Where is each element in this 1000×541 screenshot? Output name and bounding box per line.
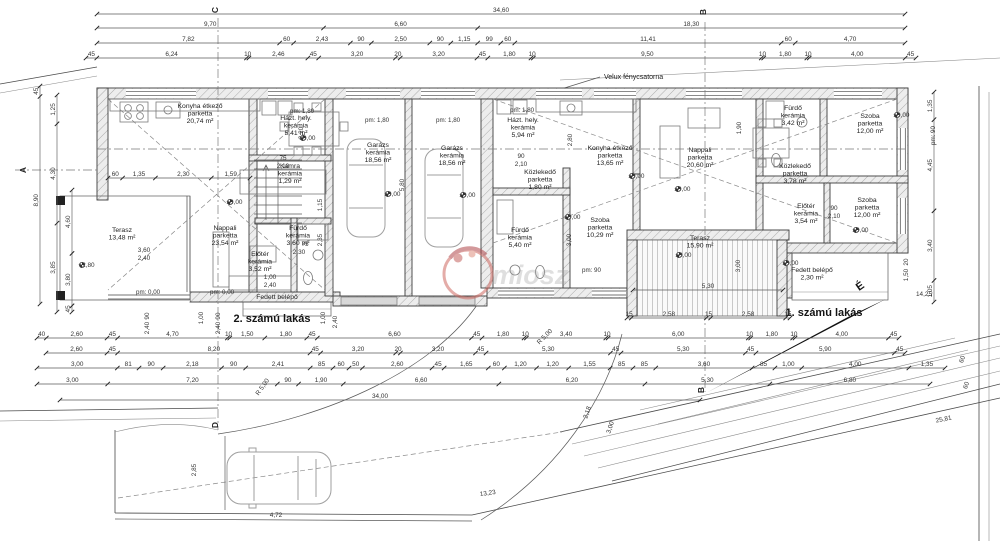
dim-chain-14: 4,603,8045 bbox=[65, 188, 74, 314]
svg-text:Nappali: Nappali bbox=[688, 147, 712, 154]
svg-text:45: 45 bbox=[612, 346, 620, 353]
free-dim-12: 2,40 bbox=[138, 255, 151, 262]
svg-text:15: 15 bbox=[784, 311, 792, 318]
room-label-nappali-l: Nappaliparketta23,54 m² bbox=[212, 225, 240, 247]
room-label-kozlekedo-r2: Közlekedőparketta3,78 m² bbox=[779, 163, 811, 185]
svg-text:34,00: 34,00 bbox=[372, 393, 388, 400]
level-mark-5: ±0,00 bbox=[675, 186, 691, 193]
parked-car bbox=[227, 448, 331, 508]
svg-text:18,30: 18,30 bbox=[683, 21, 699, 28]
svg-text:10: 10 bbox=[603, 331, 611, 338]
svg-text:3,00: 3,00 bbox=[66, 377, 79, 384]
svg-text:±0,00: ±0,00 bbox=[629, 173, 645, 180]
svg-text:10: 10 bbox=[746, 331, 754, 338]
svg-text:4,00: 4,00 bbox=[851, 51, 864, 58]
room-label-hazt-hely-l: Házt. hely.kerámia5,41 m² bbox=[280, 115, 312, 137]
svg-text:40: 40 bbox=[38, 331, 46, 338]
room-label-szoba-r3: Szobaparketta12,00 m² bbox=[854, 197, 882, 219]
apartment-right-title: 1. számú lakás bbox=[785, 307, 862, 319]
svg-text:parketta: parketta bbox=[528, 176, 553, 183]
svg-text:15: 15 bbox=[705, 311, 713, 318]
north-letter: É bbox=[853, 279, 866, 294]
svg-text:90: 90 bbox=[284, 377, 292, 384]
svg-text:3,85: 3,85 bbox=[50, 261, 57, 274]
svg-text:Közlekedő: Közlekedő bbox=[779, 163, 811, 170]
parking-area bbox=[115, 398, 1000, 521]
utility-left bbox=[262, 101, 292, 115]
svg-text:1,55: 1,55 bbox=[583, 361, 596, 368]
svg-text:2,18: 2,18 bbox=[186, 361, 199, 368]
dim-chain-5: 2,60458,20453,20203,20455,30455,30455,90… bbox=[44, 346, 907, 355]
svg-text:8,20: 8,20 bbox=[208, 346, 221, 353]
room-label-hazt-hely-r: Házt. hely.kerámia5,94 m² bbox=[507, 117, 539, 139]
free-dim-34: 90 bbox=[215, 312, 222, 320]
svg-text:10: 10 bbox=[804, 51, 812, 58]
dim-chain-8: 34,00 bbox=[58, 393, 702, 402]
svg-text:85: 85 bbox=[318, 361, 326, 368]
svg-text:6,80: 6,80 bbox=[844, 377, 857, 384]
svg-text:5,30: 5,30 bbox=[702, 283, 715, 290]
free-dim-18: 2,10 bbox=[828, 213, 841, 220]
svg-text:Szoba: Szoba bbox=[860, 113, 879, 120]
svg-text:3,80: 3,80 bbox=[65, 273, 72, 286]
svg-text:45: 45 bbox=[109, 331, 117, 338]
svg-text:60: 60 bbox=[337, 361, 345, 368]
room-label-fedett-belepo-r: Fedett belépő2,30 m² bbox=[791, 267, 833, 281]
svg-text:90: 90 bbox=[437, 36, 445, 43]
level-mark-8: ±0,00 bbox=[565, 214, 581, 221]
svg-text:1,65: 1,65 bbox=[460, 361, 473, 368]
room-label-fedett-belepo-l: Fedett belépő bbox=[256, 294, 298, 301]
svg-text:45: 45 bbox=[312, 346, 320, 353]
free-dim-13: 1,00 bbox=[264, 274, 277, 281]
svg-text:90: 90 bbox=[230, 361, 238, 368]
svg-text:50: 50 bbox=[352, 361, 360, 368]
svg-text:Szoba: Szoba bbox=[857, 197, 876, 204]
svg-text:1,80: 1,80 bbox=[765, 331, 778, 338]
room-label-garazs-1: Garázskerámia18,56 m² bbox=[365, 142, 393, 164]
svg-text:parketta: parketta bbox=[855, 204, 880, 211]
svg-text:5,30: 5,30 bbox=[677, 346, 690, 353]
level-mark-11: +2,80 bbox=[78, 262, 95, 269]
svg-text:1,20: 1,20 bbox=[514, 361, 527, 368]
svg-text:5,30: 5,30 bbox=[701, 377, 714, 384]
svg-text:3,20: 3,20 bbox=[351, 51, 364, 58]
svg-text:45: 45 bbox=[896, 346, 904, 353]
free-dim-25: 1,90 bbox=[736, 121, 743, 134]
svg-text:4,00: 4,00 bbox=[849, 361, 862, 368]
svg-text:60: 60 bbox=[283, 36, 291, 43]
svg-text:1,35: 1,35 bbox=[927, 99, 934, 112]
svg-text:±0,00: ±0,00 bbox=[853, 227, 869, 234]
dim-chain-1: 9,706,6018,30 bbox=[95, 21, 907, 30]
svg-text:9,50: 9,50 bbox=[641, 51, 654, 58]
free-dim-7: 2,18 bbox=[582, 405, 593, 419]
pm-label-1: pm: 1,80 bbox=[365, 117, 390, 124]
svg-text:1,50: 1,50 bbox=[241, 331, 254, 338]
pm-label-5: pm: 0,00 bbox=[210, 289, 235, 296]
svg-text:2,43: 2,43 bbox=[316, 36, 329, 43]
svg-text:23,54 m²: 23,54 m² bbox=[212, 240, 240, 247]
svg-text:2,46: 2,46 bbox=[272, 51, 285, 58]
dim-chain-6: 3,0081902,18902,418560502,60451,65601,20… bbox=[35, 361, 947, 370]
svg-text:Terasz: Terasz bbox=[690, 235, 711, 242]
floor-plan-page: Velux fénycsatorna bbox=[0, 0, 1000, 541]
terrace-left bbox=[56, 196, 190, 300]
room-label-terasz-r: Terasz15,90 m² bbox=[687, 235, 715, 249]
room-label-eloter-l: Előtérkerámia3,52 m² bbox=[248, 251, 272, 273]
apartment-left-title: 2. számú lakás bbox=[233, 313, 310, 325]
svg-text:2,58: 2,58 bbox=[663, 311, 676, 318]
svg-text:1,90: 1,90 bbox=[315, 377, 328, 384]
svg-text:12,00 m²: 12,00 m² bbox=[854, 212, 882, 219]
svg-text:Konyha étkező: Konyha étkező bbox=[588, 145, 633, 152]
svg-text:Garázs: Garázs bbox=[441, 145, 464, 152]
svg-text:3,40: 3,40 bbox=[927, 239, 934, 252]
free-dim-1: R 5,00 bbox=[536, 327, 555, 346]
svg-text:8,90: 8,90 bbox=[33, 194, 40, 207]
svg-text:4,30: 4,30 bbox=[50, 167, 57, 180]
free-dim-29: 1,15 bbox=[317, 198, 324, 211]
svg-text:34,60: 34,60 bbox=[493, 7, 509, 14]
svg-text:5,94 m²: 5,94 m² bbox=[511, 132, 535, 139]
svg-text:kerámia: kerámia bbox=[248, 258, 272, 265]
section-marker-a-2: A bbox=[18, 167, 28, 173]
free-dim-23: 2,20 bbox=[298, 126, 305, 139]
svg-text:45: 45 bbox=[65, 305, 72, 313]
svg-text:±0,00: ±0,00 bbox=[565, 214, 581, 221]
svg-text:3,20: 3,20 bbox=[432, 346, 445, 353]
room-label-kozlekedo-r1: Közlekedőparketta1,80 m² bbox=[524, 169, 556, 191]
svg-text:parketta: parketta bbox=[858, 120, 883, 127]
svg-text:kerámia: kerámia bbox=[366, 149, 390, 156]
svg-text:3,00: 3,00 bbox=[71, 361, 84, 368]
free-dim-2: 13,23 bbox=[479, 489, 496, 498]
svg-text:kerámia: kerámia bbox=[286, 232, 310, 239]
svg-text:Fürdő: Fürdő bbox=[784, 105, 802, 112]
free-dim-36: 1,00 bbox=[320, 311, 327, 324]
svg-text:2,58: 2,58 bbox=[742, 311, 755, 318]
svg-text:+2,80: +2,80 bbox=[78, 262, 95, 269]
free-dim-8: 3,00 bbox=[605, 420, 616, 434]
svg-text:3,40: 3,40 bbox=[560, 331, 573, 338]
svg-text:99: 99 bbox=[486, 36, 494, 43]
svg-text:45: 45 bbox=[907, 51, 915, 58]
svg-text:2,30: 2,30 bbox=[177, 171, 190, 178]
svg-text:1,29 m²: 1,29 m² bbox=[278, 178, 302, 185]
room-label-garazs-2: Garázskerámia18,56 m² bbox=[439, 145, 467, 167]
svg-text:1,25: 1,25 bbox=[50, 103, 57, 116]
svg-text:Előtér: Előtér bbox=[251, 251, 269, 258]
svg-text:±0,00: ±0,00 bbox=[675, 186, 691, 193]
free-dim-6: 14,25 bbox=[916, 291, 932, 298]
svg-text:6,60: 6,60 bbox=[388, 331, 401, 338]
free-dim-33: 1,00 bbox=[198, 311, 205, 324]
level-mark-3: ±0,00 bbox=[460, 192, 476, 199]
svg-text:Fedett belépő: Fedett belépő bbox=[256, 294, 298, 301]
svg-text:3,78 m²: 3,78 m² bbox=[783, 178, 807, 185]
svg-text:kerámia: kerámia bbox=[781, 112, 805, 119]
svg-text:6,20: 6,20 bbox=[566, 377, 579, 384]
svg-text:Terasz: Terasz bbox=[112, 227, 133, 234]
free-dim-9: 60 bbox=[958, 355, 967, 364]
dim-chain-15: 1,354,453,401,05 bbox=[927, 90, 936, 304]
svg-text:6,60: 6,60 bbox=[394, 21, 407, 28]
svg-text:10: 10 bbox=[759, 51, 767, 58]
svg-text:60: 60 bbox=[504, 36, 512, 43]
svg-text:60: 60 bbox=[493, 361, 501, 368]
svg-text:5,90: 5,90 bbox=[819, 346, 832, 353]
room-label-konyha-etkezo-l: Konyha étkezőparketta20,74 m² bbox=[178, 103, 223, 125]
svg-text:45: 45 bbox=[310, 51, 318, 58]
level-mark-0: ±0,00 bbox=[227, 199, 243, 206]
svg-text:2,50: 2,50 bbox=[394, 36, 407, 43]
pm-label-3: pm: 1,80 bbox=[510, 107, 535, 114]
free-dim-15: 90 bbox=[517, 153, 525, 160]
svg-text:kerámia: kerámia bbox=[794, 210, 818, 217]
svg-text:1,80: 1,80 bbox=[497, 331, 510, 338]
svg-text:1,15: 1,15 bbox=[458, 36, 471, 43]
svg-text:3,54 m²: 3,54 m² bbox=[794, 218, 818, 225]
svg-text:85: 85 bbox=[760, 361, 768, 368]
svg-text:Szoba: Szoba bbox=[590, 217, 609, 224]
svg-text:45: 45 bbox=[473, 331, 481, 338]
room-label-szoba-r1: Szobaparketta10,29 m² bbox=[587, 217, 615, 239]
free-dim-4: 2,85 bbox=[191, 463, 198, 476]
svg-text:20: 20 bbox=[394, 346, 402, 353]
svg-text:7,82: 7,82 bbox=[182, 36, 195, 43]
svg-text:3,20: 3,20 bbox=[352, 346, 365, 353]
svg-text:kerámia: kerámia bbox=[278, 170, 302, 177]
svg-text:4,70: 4,70 bbox=[844, 36, 857, 43]
svg-text:1,20: 1,20 bbox=[546, 361, 559, 368]
dim-chain-12: 458,90 bbox=[33, 84, 42, 306]
svg-text:Házt. hely.: Házt. hely. bbox=[507, 117, 539, 124]
svg-text:±0,00: ±0,00 bbox=[227, 199, 243, 206]
section-marker-c-0: C bbox=[210, 7, 220, 13]
pm-label-2: pm: 1,80 bbox=[436, 117, 461, 124]
room-label-furdo-r1: Fürdőkerámia5,40 m² bbox=[508, 227, 532, 249]
svg-text:20,74 m²: 20,74 m² bbox=[187, 118, 215, 125]
free-dim-22: 2,10 bbox=[277, 163, 290, 170]
svg-text:1,80: 1,80 bbox=[280, 331, 293, 338]
free-dim-19: 75 bbox=[301, 241, 309, 248]
velux-note-label: Velux fénycsatorna bbox=[604, 74, 663, 81]
svg-text:45: 45 bbox=[747, 346, 755, 353]
watermark-text: miosz bbox=[492, 260, 569, 290]
free-dim-10: 60 bbox=[962, 381, 971, 390]
svg-text:18,56 m²: 18,56 m² bbox=[439, 160, 467, 167]
dim-chain-2: 7,82602,43902,50901,15996011,41604,70 bbox=[95, 36, 907, 45]
room-label-nappali-r: Nappaliparketta20,60 m² bbox=[687, 147, 715, 169]
free-dim-17: 90 bbox=[830, 205, 838, 212]
svg-text:18,56 m²: 18,56 m² bbox=[365, 157, 393, 164]
svg-text:10: 10 bbox=[244, 51, 252, 58]
svg-text:45: 45 bbox=[109, 346, 117, 353]
room-label-szoba-r2: Szobaparketta12,00 m² bbox=[857, 113, 885, 135]
svg-text:45: 45 bbox=[309, 331, 317, 338]
svg-text:3,20: 3,20 bbox=[432, 51, 445, 58]
svg-text:2,30 m²: 2,30 m² bbox=[800, 274, 824, 281]
svg-text:parketta: parketta bbox=[598, 152, 623, 159]
svg-text:90: 90 bbox=[148, 361, 156, 368]
svg-text:45: 45 bbox=[477, 346, 485, 353]
svg-text:±0,00: ±0,00 bbox=[783, 260, 799, 267]
free-dim-3: 4,72 bbox=[270, 512, 283, 519]
section-marker-d-3: D bbox=[210, 422, 220, 428]
svg-text:1,59: 1,59 bbox=[224, 171, 237, 178]
level-mark-7: ±0,00 bbox=[853, 227, 869, 234]
svg-text:Konyha étkező: Konyha étkező bbox=[178, 103, 223, 110]
free-dim-31: 90 bbox=[144, 312, 151, 320]
free-dim-39: 1,50 bbox=[903, 268, 910, 281]
svg-text:1,80 m²: 1,80 m² bbox=[528, 184, 552, 191]
svg-text:6,60: 6,60 bbox=[415, 377, 428, 384]
svg-text:20: 20 bbox=[394, 51, 402, 58]
svg-text:Előtér: Előtér bbox=[797, 203, 815, 210]
svg-text:5,30: 5,30 bbox=[542, 346, 555, 353]
svg-text:Garázs: Garázs bbox=[367, 142, 390, 149]
svg-text:45: 45 bbox=[33, 87, 40, 95]
dim-chain-9: 601,352,301,59 bbox=[106, 171, 252, 180]
svg-text:4,70: 4,70 bbox=[166, 331, 179, 338]
svg-text:1,80: 1,80 bbox=[503, 51, 516, 58]
svg-text:Házt. hely.: Házt. hely. bbox=[280, 115, 312, 122]
free-dim-5: 25,81 bbox=[935, 414, 953, 424]
svg-text:4,00: 4,00 bbox=[836, 331, 849, 338]
svg-text:4,60: 4,60 bbox=[65, 215, 72, 228]
free-dim-21: 75 bbox=[279, 155, 287, 162]
pm-label-6: pm: 90 bbox=[582, 267, 601, 274]
dim-chain-4: 402,60454,70101,501,80456,60451,80103,40… bbox=[35, 331, 901, 340]
svg-text:±0,00: ±0,00 bbox=[676, 252, 692, 259]
svg-text:1,80: 1,80 bbox=[779, 51, 792, 58]
svg-text:85: 85 bbox=[641, 361, 649, 368]
free-dim-35: 2,40 bbox=[215, 321, 222, 334]
free-dim-30: 2,35 bbox=[317, 233, 324, 246]
section-marker-b-1: B bbox=[698, 9, 708, 15]
svg-text:6,24: 6,24 bbox=[165, 51, 178, 58]
section-marker-b-4: B bbox=[696, 387, 706, 393]
svg-text:kerámia: kerámia bbox=[511, 124, 535, 131]
free-dim-16: 2,10 bbox=[515, 161, 528, 168]
free-dim-26: 5,80 bbox=[399, 178, 406, 191]
room-label-terasz-l: Terasz13,48 m² bbox=[109, 227, 137, 241]
svg-text:1,35: 1,35 bbox=[921, 361, 934, 368]
dim-chain-7: 3,007,20901,906,606,205,306,80 bbox=[35, 377, 932, 386]
svg-text:parketta: parketta bbox=[213, 232, 238, 239]
svg-text:3,42 m²: 3,42 m² bbox=[781, 120, 805, 127]
svg-text:60: 60 bbox=[112, 171, 120, 178]
svg-text:Nappali: Nappali bbox=[213, 225, 237, 232]
svg-text:Fedett belépő: Fedett belépő bbox=[791, 267, 833, 274]
svg-text:1,35: 1,35 bbox=[133, 171, 146, 178]
free-dim-38: 20 bbox=[903, 258, 910, 266]
free-dim-37: 2,40 bbox=[332, 315, 339, 328]
svg-text:Fürdő: Fürdő bbox=[289, 225, 307, 232]
level-mark-9: ±0,00 bbox=[676, 252, 692, 259]
svg-text:±0,00: ±0,00 bbox=[894, 112, 910, 119]
svg-text:90: 90 bbox=[357, 36, 365, 43]
svg-text:parketta: parketta bbox=[688, 154, 713, 161]
svg-text:2,60: 2,60 bbox=[70, 346, 83, 353]
dim-chain-3: 456,24102,46453,20203,20451,80109,50101,… bbox=[84, 51, 918, 60]
svg-text:45: 45 bbox=[88, 51, 96, 58]
svg-text:10: 10 bbox=[225, 331, 233, 338]
svg-text:parketta: parketta bbox=[783, 170, 808, 177]
svg-text:2,60: 2,60 bbox=[391, 361, 404, 368]
svg-text:10: 10 bbox=[522, 331, 530, 338]
svg-text:85: 85 bbox=[618, 361, 626, 368]
svg-text:45: 45 bbox=[890, 331, 898, 338]
level-mark-6: ±0,00 bbox=[894, 112, 910, 119]
svg-text:parketta: parketta bbox=[588, 224, 613, 231]
free-dim-14: 2,40 bbox=[264, 282, 277, 289]
svg-text:6,00: 6,00 bbox=[672, 331, 685, 338]
free-dim-0: R 5,00 bbox=[255, 377, 272, 397]
svg-text:20,60 m²: 20,60 m² bbox=[687, 162, 715, 169]
svg-text:±0,00: ±0,00 bbox=[460, 192, 476, 199]
svg-text:2,60: 2,60 bbox=[70, 331, 83, 338]
svg-text:15,90 m²: 15,90 m² bbox=[687, 242, 715, 249]
pm-label-4: pm: 0,00 bbox=[136, 289, 161, 296]
svg-text:kerámia: kerámia bbox=[508, 234, 532, 241]
svg-text:3,60: 3,60 bbox=[698, 361, 711, 368]
svg-text:2,41: 2,41 bbox=[272, 361, 285, 368]
terrace-glass-wall bbox=[187, 196, 190, 292]
svg-text:parketta: parketta bbox=[188, 110, 213, 117]
svg-text:7,20: 7,20 bbox=[186, 377, 199, 384]
svg-text:4,45: 4,45 bbox=[927, 159, 934, 172]
svg-text:9,70: 9,70 bbox=[204, 21, 217, 28]
free-dim-32: 2,40 bbox=[144, 321, 151, 334]
terrace-right-deck bbox=[627, 240, 787, 316]
room-label-konyha-etkezo-r: Konyha étkezőparketta13,65 m² bbox=[588, 145, 633, 167]
svg-text:13,65 m²: 13,65 m² bbox=[597, 160, 625, 167]
svg-text:Fürdő: Fürdő bbox=[511, 227, 529, 234]
svg-text:45: 45 bbox=[479, 51, 487, 58]
room-label-furdo-r2: Fürdőkerámia3,42 m² bbox=[781, 105, 805, 127]
svg-text:60: 60 bbox=[785, 36, 793, 43]
svg-text:45: 45 bbox=[435, 361, 443, 368]
svg-text:5,40 m²: 5,40 m² bbox=[508, 242, 532, 249]
svg-text:Közlekedő: Közlekedő bbox=[524, 169, 556, 176]
svg-text:15: 15 bbox=[626, 311, 634, 318]
svg-text:10: 10 bbox=[529, 51, 537, 58]
svg-text:12,00 m²: 12,00 m² bbox=[857, 128, 885, 135]
free-dim-24: 2,80 bbox=[567, 133, 574, 146]
svg-text:kerámia: kerámia bbox=[440, 152, 464, 159]
pm-label-7: pm: 90 bbox=[930, 126, 937, 145]
level-mark-4: ±0,00 bbox=[629, 173, 645, 180]
room-label-eloter-r: Előtérkerámia3,54 m² bbox=[794, 203, 818, 225]
svg-text:13,48 m²: 13,48 m² bbox=[109, 234, 137, 241]
free-dim-27: 3,00 bbox=[566, 233, 573, 246]
svg-text:11,41: 11,41 bbox=[640, 36, 656, 43]
svg-text:10: 10 bbox=[790, 331, 798, 338]
svg-text:81: 81 bbox=[125, 361, 133, 368]
level-mark-10: ±0,00 bbox=[783, 260, 799, 267]
svg-text:1,00: 1,00 bbox=[782, 361, 795, 368]
free-dim-11: 3,60 bbox=[138, 247, 151, 254]
pm-label-0: pm: 1,80 bbox=[290, 108, 315, 115]
svg-text:10,29 m²: 10,29 m² bbox=[587, 232, 615, 239]
free-dim-20: 2,30 bbox=[293, 249, 306, 256]
floor-plan-drawing: Velux fénycsatorna bbox=[0, 0, 1000, 541]
free-dim-28: 3,00 bbox=[735, 259, 742, 272]
svg-text:3,52 m²: 3,52 m² bbox=[248, 266, 272, 273]
